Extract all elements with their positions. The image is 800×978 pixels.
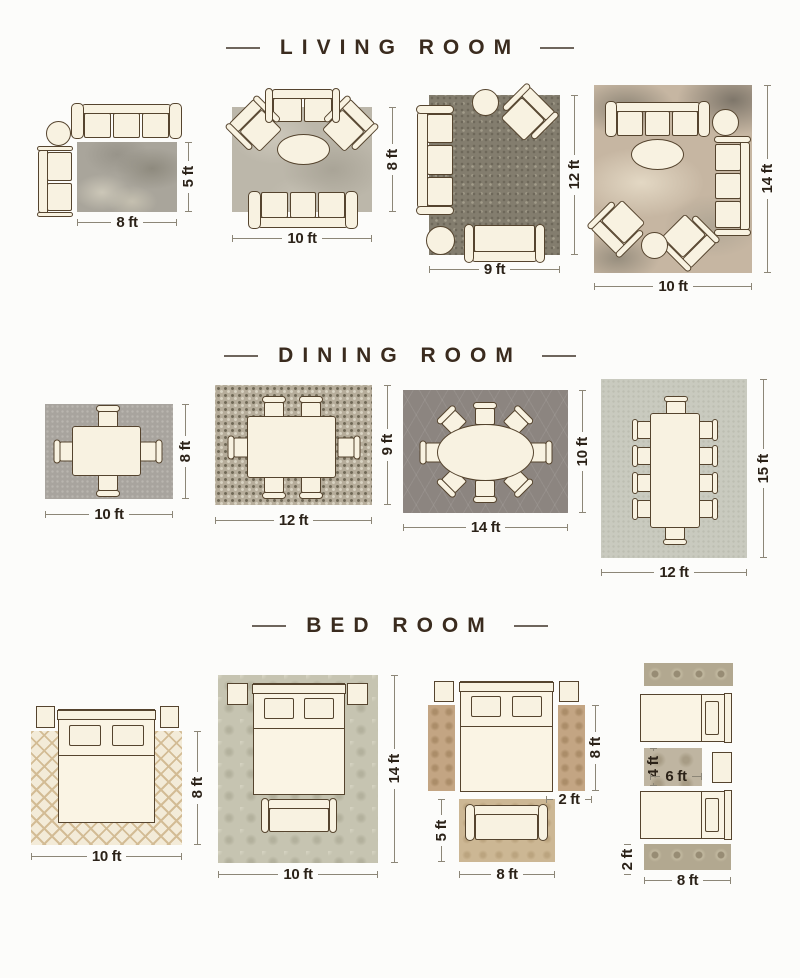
dimension-line: [143, 222, 177, 223]
bed: [253, 683, 345, 795]
dimension-line: [129, 514, 173, 515]
dimension-line: [574, 195, 575, 255]
dimension-line: [546, 799, 553, 800]
bench: [262, 799, 336, 832]
dimension-line: [653, 748, 654, 751]
dimension-line: [692, 776, 702, 777]
dimension-line: [394, 675, 395, 749]
height-dimension: 9 ft: [378, 385, 396, 505]
dimension-line: [403, 527, 466, 528]
dimension-line: [318, 874, 378, 875]
dining-chair: [632, 419, 652, 441]
dining-chair: [338, 436, 361, 460]
round-side-table: [46, 121, 71, 146]
dimension-line: [126, 856, 182, 857]
dimension-line: [185, 404, 186, 436]
dimension-text: 10 ft: [287, 230, 316, 247]
dimension-text: 14 ft: [471, 519, 500, 536]
bed: [58, 709, 155, 823]
dimension-line: [322, 238, 372, 239]
width-dimension: 10 ft: [232, 230, 372, 246]
dimension-line: [601, 572, 654, 573]
dimension-text: 10 ft: [283, 866, 312, 883]
dimension-line: [510, 269, 560, 270]
dimension-line: [594, 286, 653, 287]
dining-chair: [299, 476, 323, 499]
runner-length-dimension: 8 ft: [644, 872, 731, 888]
width-dimension: 10 ft: [594, 278, 752, 294]
pillow: [112, 725, 143, 746]
dimension-text: 10 ft: [658, 278, 687, 295]
dimension-line: [392, 107, 393, 144]
dimension-text: 8 ft: [384, 149, 401, 170]
dimension-text: 14 ft: [759, 164, 776, 193]
pillow: [705, 701, 719, 735]
rug-size-guide: LIVING ROOM 8 ft 5 ft: [0, 0, 800, 978]
nightstand: [227, 683, 248, 705]
dimension-line: [188, 193, 189, 212]
width-dimension: 12 ft: [215, 512, 372, 528]
title-dash: [514, 625, 548, 627]
height-dimension: 14 ft: [385, 675, 403, 863]
nightstand: [347, 683, 368, 705]
dimension-text: 14 ft: [386, 754, 403, 783]
dimension-line: [218, 874, 278, 875]
dimension-text: 15 ft: [755, 454, 772, 483]
round-side-table: [472, 89, 499, 116]
round-ottoman: [426, 226, 455, 255]
dimension-line: [582, 471, 583, 513]
dimension-line: [387, 385, 388, 429]
height-dimension: 12 ft: [565, 95, 583, 255]
dimension-line: [215, 520, 274, 521]
area-rug: [77, 142, 177, 212]
dimension-text: 9 ft: [484, 261, 505, 278]
height-dimension: 10 ft: [573, 390, 591, 513]
headboard: [724, 790, 732, 840]
dimension-text: 8 ft: [189, 777, 206, 798]
headboard: [724, 693, 732, 743]
dimension-line: [523, 874, 555, 875]
runner-length-dimension: 8 ft: [586, 705, 604, 791]
accent-rug-width-dimension: 8 ft: [459, 866, 555, 882]
dimension-line: [595, 764, 596, 791]
dimension-text: 10 ft: [92, 848, 121, 865]
dimension-line: [763, 488, 764, 558]
dimension-line: [441, 846, 442, 862]
dimension-line: [595, 705, 596, 732]
dining-chair: [262, 476, 286, 499]
title-dash: [224, 355, 258, 357]
nightstand: [559, 681, 579, 702]
pillow: [304, 698, 334, 719]
accent-rug-height-dimension: 5 ft: [432, 799, 450, 862]
dimension-line: [767, 199, 768, 273]
pillow: [471, 696, 501, 717]
dining-chair: [632, 472, 652, 494]
dimension-line: [650, 776, 660, 777]
nightstand: [36, 706, 55, 728]
dining-chair: [632, 498, 652, 520]
dimension-line: [313, 520, 372, 521]
dimension-line: [232, 238, 282, 239]
pillow: [512, 696, 542, 717]
dimension-line: [387, 461, 388, 505]
dining-chair: [96, 474, 120, 497]
runner-width-dimension: 2 ft: [618, 844, 636, 870]
dining-chair: [473, 480, 497, 503]
headboard: [252, 684, 346, 694]
dimension-text: 8 ft: [177, 441, 194, 462]
dimension-line: [45, 514, 89, 515]
height-dimension: 5 ft: [179, 142, 197, 212]
oval-coffee-table: [631, 139, 684, 170]
dimension-line: [188, 142, 189, 161]
dimension-line: [582, 390, 583, 432]
loveseat: [38, 147, 72, 216]
bench: [467, 805, 546, 840]
dimension-text: 5 ft: [180, 166, 197, 187]
three-seat-sofa: [417, 107, 453, 213]
dimension-text: 6 ft: [665, 768, 686, 785]
three-seat-sofa: [73, 104, 180, 138]
dining-chair: [96, 405, 120, 428]
width-dimension: 10 ft: [31, 848, 182, 864]
oval-dining-table: [437, 424, 534, 481]
round-side-table: [712, 109, 739, 136]
accent-rug-width-dimension: 6 ft: [650, 768, 702, 784]
width-dimension: 14 ft: [403, 519, 568, 535]
living-room-section-title: LIVING ROOM: [0, 36, 800, 60]
runner-rug: [644, 844, 731, 870]
pillow: [264, 698, 294, 719]
dining-table: [650, 413, 700, 528]
dimension-line: [429, 269, 479, 270]
dining-table: [247, 416, 336, 478]
height-dimension: 8 ft: [188, 731, 206, 845]
dimension-text: 2 ft: [619, 849, 636, 870]
runner-rug: [428, 705, 455, 791]
width-dimension: 8 ft: [77, 214, 177, 230]
dimension-line: [585, 799, 592, 800]
pillow: [69, 725, 100, 746]
dining-chair: [698, 445, 718, 467]
height-dimension: 15 ft: [754, 379, 772, 558]
dimension-text: 12 ft: [659, 564, 688, 581]
dimension-text: 9 ft: [379, 434, 396, 455]
loveseat: [466, 225, 543, 262]
title-dash: [252, 625, 286, 627]
dimension-line: [703, 880, 731, 881]
nightstand: [712, 752, 732, 783]
dining-chair: [140, 440, 163, 464]
headboard: [459, 682, 554, 692]
bed-room-section-title: BED ROOM: [0, 614, 800, 638]
height-dimension: 8 ft: [383, 107, 401, 212]
dimension-text: 5 ft: [433, 820, 450, 841]
width-dimension: 10 ft: [45, 506, 173, 522]
dimension-line: [185, 467, 186, 499]
dining-chair: [698, 472, 718, 494]
oval-coffee-table: [277, 134, 330, 165]
title-dash: [542, 355, 576, 357]
dimension-line: [767, 85, 768, 159]
dimension-text: 12 ft: [279, 512, 308, 529]
dimension-text: 8 ft: [677, 872, 698, 889]
twin-bed: [640, 694, 732, 742]
title-dash: [226, 47, 260, 49]
dining-chair: [698, 419, 718, 441]
dimension-line: [763, 379, 764, 449]
headboard: [57, 710, 156, 720]
nightstand: [160, 706, 179, 728]
dimension-line: [197, 731, 198, 772]
dimension-line: [392, 175, 393, 212]
section-title-text: LIVING ROOM: [280, 36, 520, 60]
height-dimension: 14 ft: [758, 85, 776, 273]
dining-table: [72, 426, 141, 476]
round-ottoman: [641, 232, 668, 259]
dimension-line: [459, 874, 491, 875]
dimension-text: 8 ft: [587, 737, 604, 758]
dimension-line: [394, 789, 395, 863]
runner-rug: [644, 663, 733, 686]
three-seat-sofa: [607, 102, 708, 136]
section-title-text: DINING ROOM: [278, 344, 522, 368]
dimension-text: 8 ft: [496, 866, 517, 883]
dimension-line: [574, 95, 575, 155]
width-dimension: 12 ft: [601, 564, 747, 580]
dimension-text: 8 ft: [116, 214, 137, 231]
dimension-text: 10 ft: [94, 506, 123, 523]
dimension-text: 12 ft: [566, 160, 583, 189]
width-dimension: 10 ft: [218, 866, 378, 882]
dining-chair: [663, 526, 688, 545]
width-dimension: 9 ft: [429, 261, 560, 277]
dimension-line: [694, 572, 747, 573]
runner-rug: [558, 705, 585, 791]
dining-room-section-title: DINING ROOM: [0, 344, 800, 368]
dimension-text: 2 ft: [558, 791, 579, 808]
nightstand: [434, 681, 454, 702]
dimension-line: [77, 222, 111, 223]
three-seat-sofa: [715, 137, 750, 235]
dimension-line: [197, 804, 198, 845]
dimension-line: [441, 799, 442, 815]
dimension-line: [644, 880, 672, 881]
twin-bed: [640, 791, 732, 839]
dining-chair: [698, 498, 718, 520]
dining-chair: [473, 402, 497, 425]
dimension-line: [693, 286, 752, 287]
runner-width-dimension: 2 ft: [546, 791, 592, 807]
title-dash: [540, 47, 574, 49]
dining-chair: [632, 445, 652, 467]
dimension-line: [505, 527, 568, 528]
three-seat-sofa: [250, 192, 356, 228]
bed: [460, 681, 553, 792]
dimension-line: [31, 856, 87, 857]
height-dimension: 8 ft: [176, 404, 194, 499]
section-title-text: BED ROOM: [306, 614, 494, 638]
dimension-text: 10 ft: [574, 437, 591, 466]
pillow: [705, 798, 719, 832]
